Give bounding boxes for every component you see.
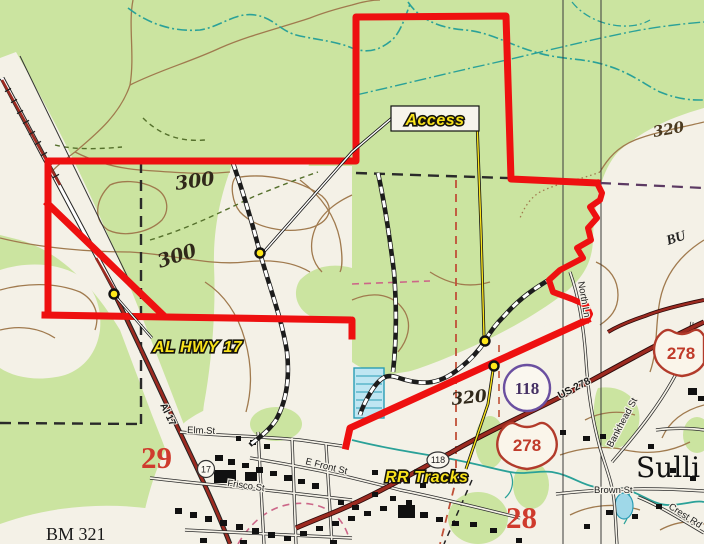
street-label-elm: Elm St (187, 425, 216, 437)
topo-map-screenshot: 118 118 17 278 278 300 300 320 320 29 28… (0, 0, 704, 544)
topo-map-canvas: 118 118 17 278 278 300 300 320 320 29 28… (0, 0, 704, 544)
marker-al-hwy-17 (110, 290, 119, 299)
section-number-29: 29 (141, 440, 172, 475)
benchmark-label: BM 321 (46, 524, 106, 544)
section-number-28: 28 (506, 500, 537, 535)
pond-small (615, 493, 633, 519)
marker-access-west (256, 249, 265, 258)
town-name-partial: Sulli (636, 451, 700, 484)
us-278-number-east: 278 (667, 344, 695, 363)
state-route-118-number: 118 (515, 379, 540, 398)
marker-rr-tracks (490, 362, 499, 371)
us-278-number-center: 278 (513, 436, 541, 455)
rr-tracks-callout: RR Tracks (385, 469, 468, 486)
state-route-118-small-number: 118 (431, 455, 445, 465)
contour-label-320-center: 320 (450, 386, 488, 410)
access-callout: Access (404, 112, 464, 129)
state-route-17-number: 17 (201, 465, 211, 475)
street-label-brown: Brown St (594, 485, 633, 496)
al-hwy-17-callout: AL HWY 17 (152, 339, 243, 356)
marker-access-east (481, 337, 490, 346)
